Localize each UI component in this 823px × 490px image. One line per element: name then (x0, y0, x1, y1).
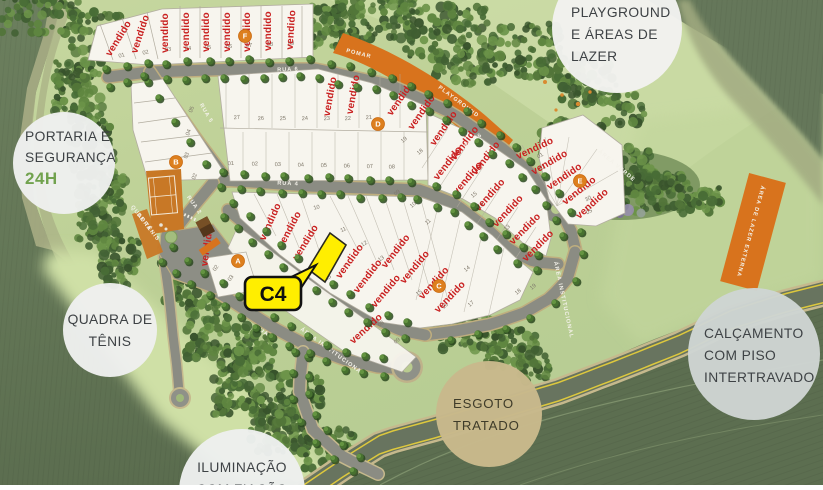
svg-text:PORTARIA E: PORTARIA E (25, 129, 111, 144)
svg-text:26: 26 (258, 116, 265, 123)
svg-text:03: 03 (275, 162, 282, 169)
svg-text:24: 24 (302, 116, 309, 123)
svg-text:INTERTRAVADO: INTERTRAVADO (704, 370, 815, 385)
svg-text:C: C (436, 282, 442, 291)
svg-text:ILUMINAÇÃO: ILUMINAÇÃO (197, 459, 287, 475)
svg-text:LAZER: LAZER (571, 49, 617, 64)
svg-text:05: 05 (321, 163, 328, 170)
svg-text:COM FIAÇÃO: COM FIAÇÃO (196, 481, 287, 485)
svg-text:22: 22 (345, 116, 352, 123)
svg-text:TRATADO: TRATADO (453, 418, 520, 433)
svg-text:TÊNIS: TÊNIS (89, 333, 132, 349)
svg-text:vendido: vendido (263, 11, 274, 51)
svg-text:02: 02 (252, 161, 259, 168)
svg-text:vendido: vendido (201, 12, 212, 52)
svg-text:COM PISO: COM PISO (704, 348, 776, 363)
svg-text:25: 25 (280, 116, 287, 123)
svg-text:24H: 24H (25, 169, 58, 188)
svg-text:27: 27 (234, 115, 241, 122)
svg-text:E: E (577, 177, 582, 186)
svg-text:QUADRA DE: QUADRA DE (68, 312, 153, 327)
svg-text:07: 07 (367, 164, 374, 171)
svg-text:RUA 4: RUA 4 (277, 181, 299, 188)
svg-text:PLAYGROUND: PLAYGROUND (571, 5, 671, 20)
svg-text:vendido: vendido (181, 12, 192, 52)
svg-text:01: 01 (228, 161, 235, 168)
svg-text:08: 08 (389, 164, 396, 171)
svg-text:D: D (375, 120, 381, 129)
svg-text:RUA 6: RUA 6 (277, 67, 299, 74)
svg-text:06: 06 (344, 163, 351, 170)
svg-text:vendido: vendido (222, 12, 233, 52)
svg-text:A: A (235, 257, 241, 266)
svg-text:C4: C4 (260, 283, 287, 306)
svg-text:F: F (243, 32, 248, 41)
svg-text:21: 21 (366, 115, 373, 122)
svg-text:SEGURANÇA: SEGURANÇA (25, 150, 116, 165)
svg-text:ESGOTO: ESGOTO (453, 396, 514, 411)
svg-text:CALÇAMENTO: CALÇAMENTO (704, 326, 804, 341)
svg-text:04: 04 (298, 162, 305, 169)
svg-text:B: B (173, 158, 179, 167)
svg-text:E ÁREAS DE: E ÁREAS DE (571, 26, 658, 42)
svg-text:vendido: vendido (160, 13, 171, 53)
